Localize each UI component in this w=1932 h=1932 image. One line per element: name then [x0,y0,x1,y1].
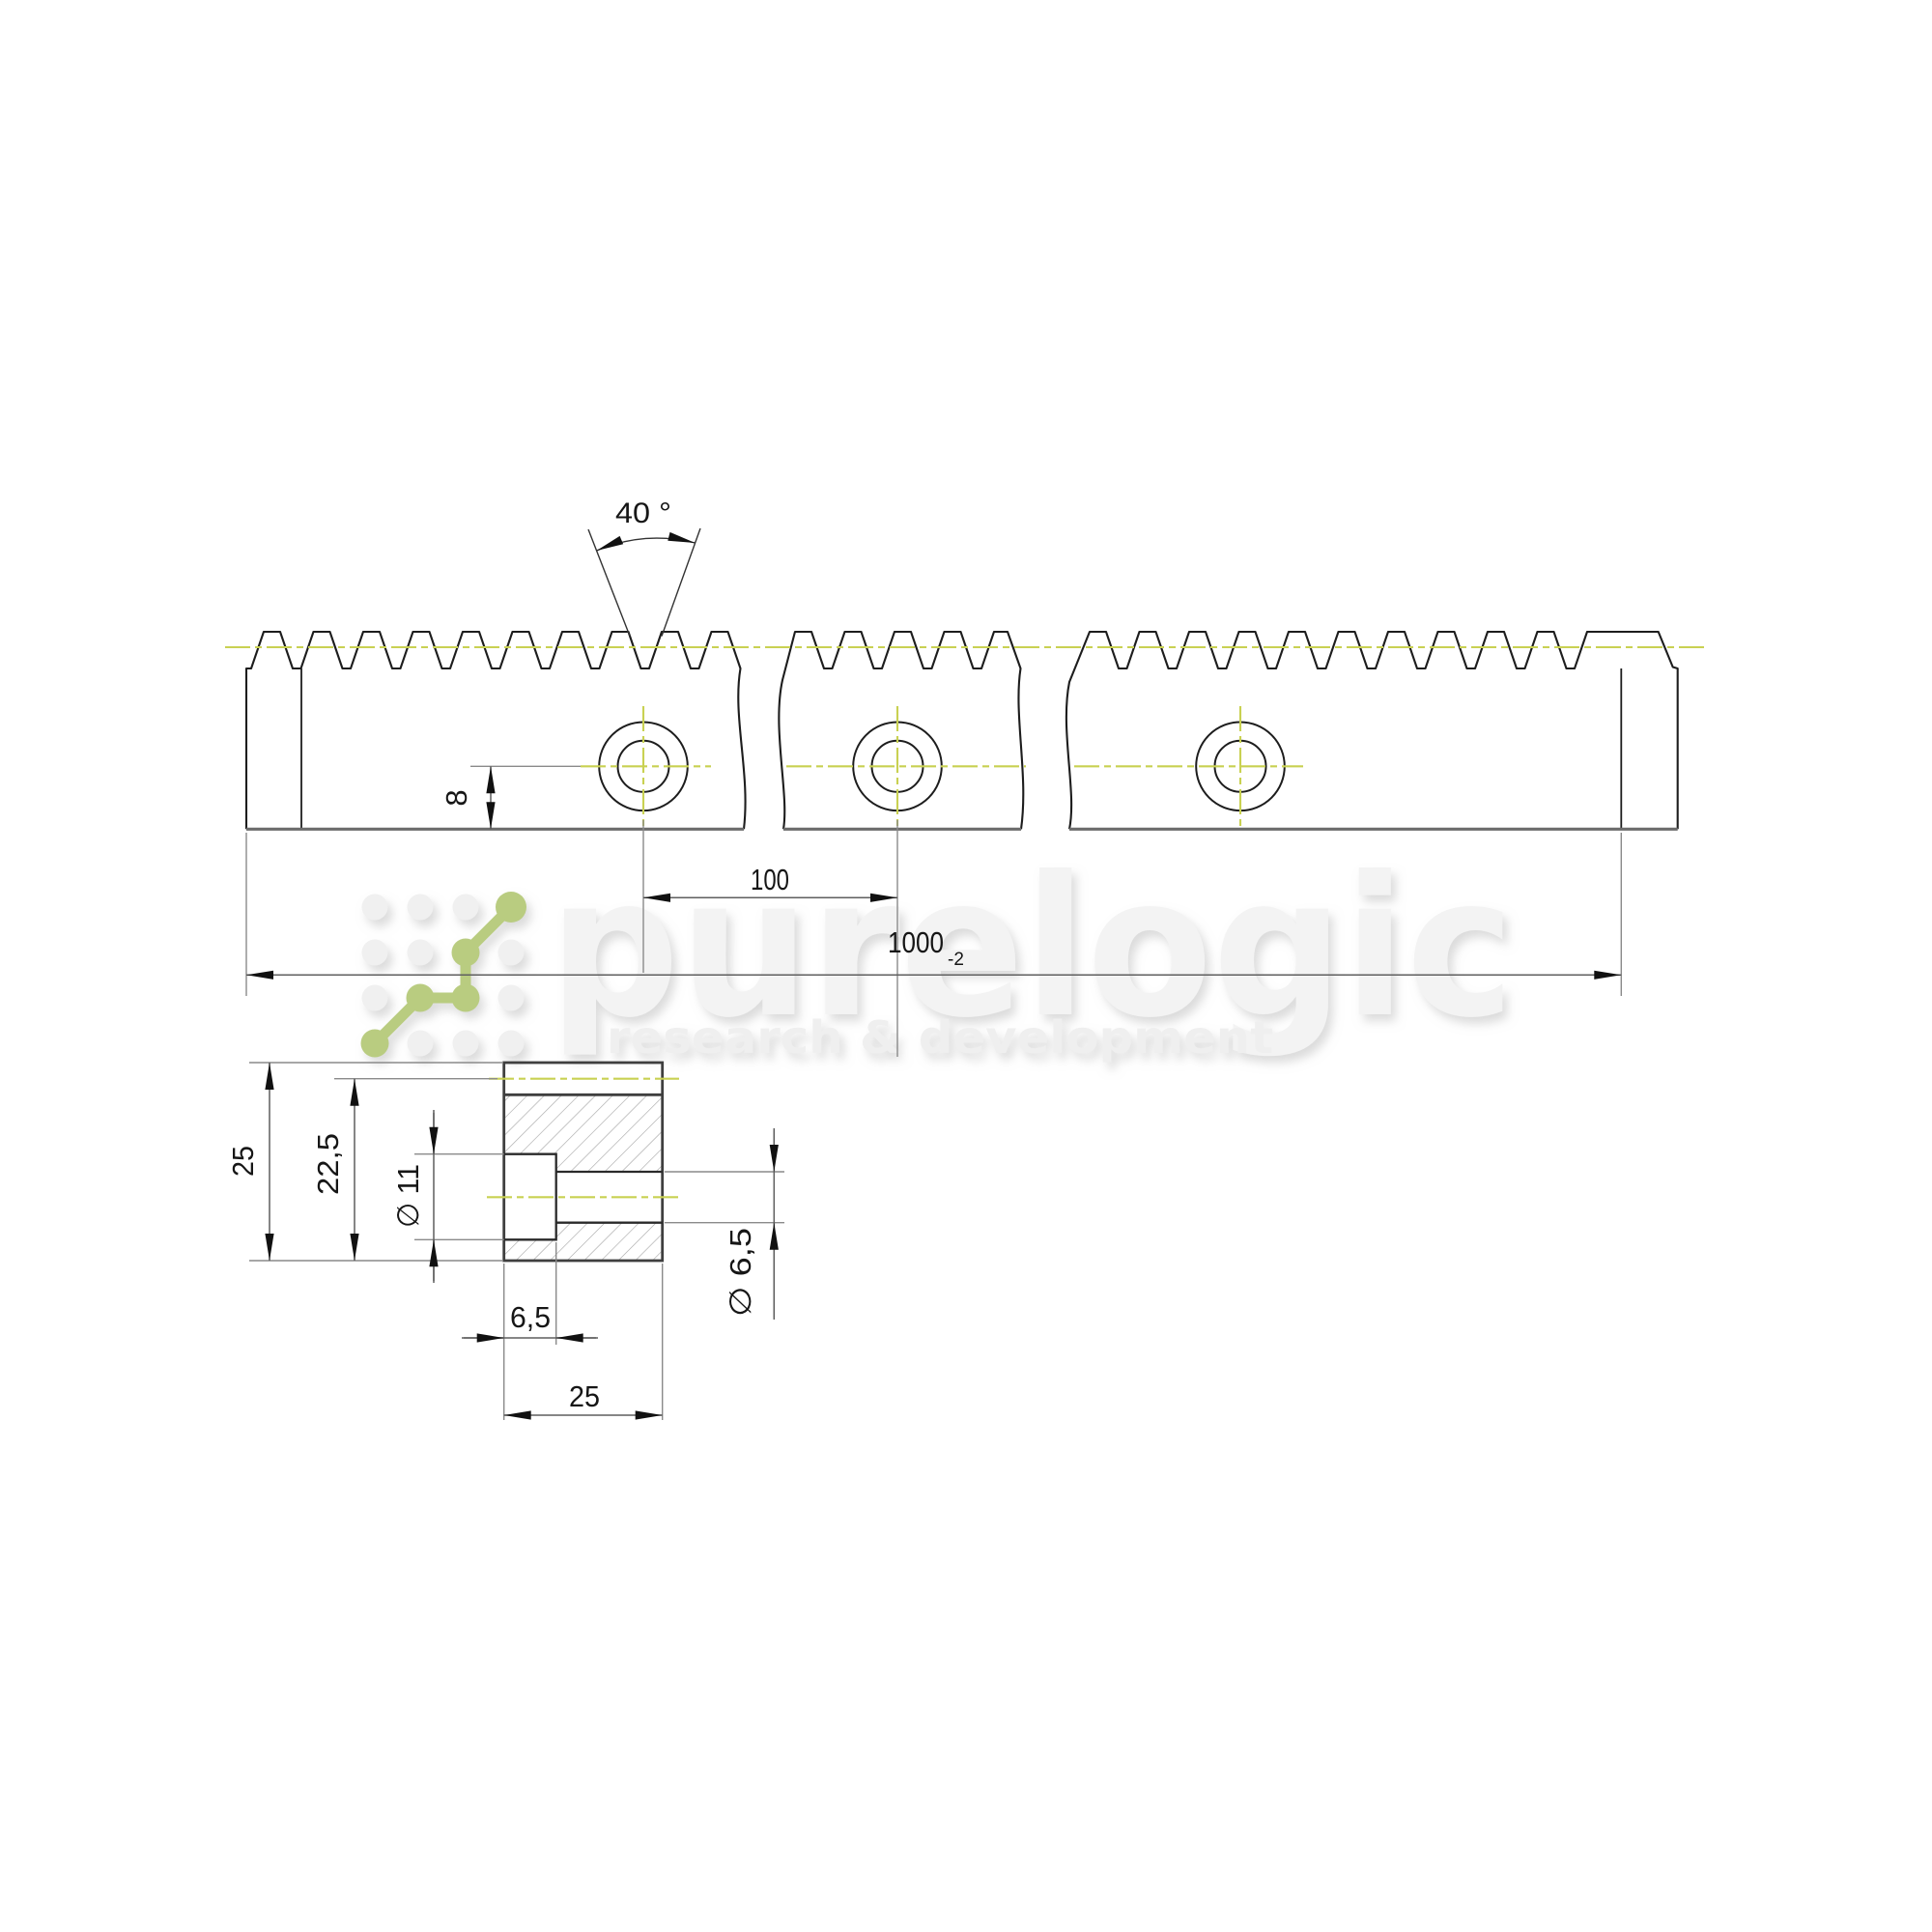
through-hole-diameter-dim-label: ∅ 6,5 [724,1228,757,1317]
section-height-dim-label: 25 [226,1146,260,1177]
technical-drawing-canvas: purelogic research & development [0,0,1932,1932]
overall-length-tolerance-label: -2 [948,950,964,970]
tagline-watermark-text: research & development [607,1011,1273,1064]
overall-length-dim-label: 1000 [888,925,944,959]
center-height-dim-label: 8 [440,789,473,806]
section-width-dim-label: 25 [569,1379,600,1413]
counterbore-diameter-dim-label: ∅ 11 [391,1164,425,1228]
pitch-height-dim-label: 22,5 [311,1133,345,1195]
angle-dim-label: 40 ° [615,497,671,529]
counterbore-depth-dim-label: 6,5 [510,1300,551,1334]
hole-spacing-dim-label: 100 [751,863,789,896]
